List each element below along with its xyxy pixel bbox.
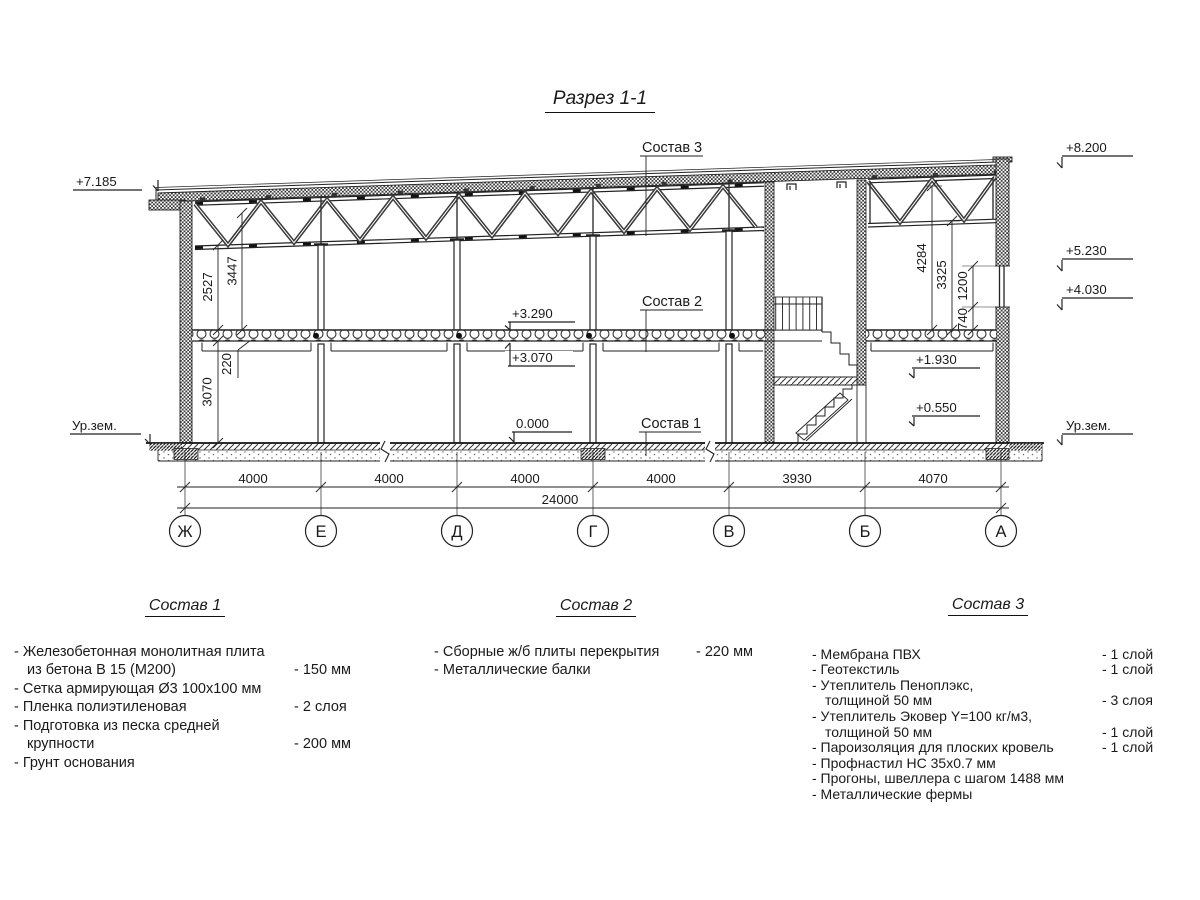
elev-parapet-right: +8.200 <box>1066 140 1107 155</box>
span-dim: 4070 <box>918 471 947 486</box>
legend-title: Состав 2 <box>434 597 758 616</box>
horizontal-dims <box>177 452 1009 516</box>
axis-label: В <box>723 523 734 541</box>
axis-label: А <box>995 523 1006 541</box>
legend-sostav-1: Состав 1 - Железобетонная монолитная пли… <box>14 597 356 772</box>
axis-label: Е <box>315 523 326 541</box>
legend-row: - Утеплитель Пеноплэкс, <box>812 678 1164 694</box>
legend-row: толщиной 50 мм- 1 слой <box>812 725 1164 741</box>
window-right-wall <box>995 266 1010 307</box>
ground-slab <box>146 441 1044 462</box>
legend-row: из бетона В 15 (М200)- 150 мм <box>14 661 356 680</box>
span-dim: 4000 <box>510 471 539 486</box>
axis-label: Д <box>451 523 462 541</box>
elev-platform-upper: +1.930 <box>916 352 957 367</box>
staircase <box>774 297 857 443</box>
elev-right-upper: +5.230 <box>1066 243 1107 258</box>
elev-right-lower: +4.030 <box>1066 282 1107 297</box>
elev-ground-right: Ур.зем. <box>1066 418 1111 433</box>
blind-area-right <box>1009 444 1042 451</box>
legend-row: - Железобетонная монолитная плита <box>14 643 356 662</box>
stair-landing <box>774 377 857 385</box>
legend-title: Состав 3 <box>812 597 1164 613</box>
elev-platform-lower: +0.550 <box>916 400 957 415</box>
elev-slab-bottom: +3.070 <box>512 350 553 365</box>
foundation-pad <box>986 449 1009 460</box>
legend-row: - Профнастил НС 35х0.7 мм <box>812 756 1164 772</box>
legend-row: - Мембрана ПВХ- 1 слой <box>812 647 1164 663</box>
legend-row: - Грунт основания <box>14 754 356 773</box>
legend-row: - Сборные ж/б плиты перекрытия- 220 мм <box>434 643 758 662</box>
dim-1200: 1200 <box>955 271 970 300</box>
legend-row: - Подготовка из песка средней <box>14 717 356 736</box>
callout-sostav-2: Состав 2 <box>642 294 702 310</box>
stair-upper-flight <box>822 332 857 376</box>
legend-row: - Пароизоляция для плоских кровель- 1 сл… <box>812 740 1164 756</box>
legend-row: - Пленка полиэтиленовая- 2 слоя <box>14 698 356 717</box>
dim-3325: 3325 <box>934 260 949 289</box>
break-symbol <box>705 441 715 462</box>
elev-ground-left: Ур.зем. <box>72 418 117 433</box>
legend-sostav-2: Состав 2 - Сборные ж/б плиты перекрытия-… <box>434 597 758 680</box>
span-dim: 4000 <box>374 471 403 486</box>
legend-title: Состав 1 <box>14 597 356 616</box>
axis-label: Ж <box>177 523 193 541</box>
legend-sostav-3: Состав 3 - Мембрана ПВХ- 1 слой - Геотек… <box>812 597 1164 803</box>
legend-row: крупности- 200 мм <box>14 735 356 754</box>
stair-lower-flight <box>798 385 852 443</box>
legend-row: толщиной 50 мм- 3 слоя <box>812 693 1164 709</box>
dim-3070: 3070 <box>200 377 215 406</box>
break-symbol <box>380 441 390 462</box>
stair-door-opening <box>857 385 866 443</box>
legend-row: - Металлические балки <box>434 661 758 680</box>
legend-row: - Геотекстиль- 1 слой <box>812 662 1164 678</box>
axis-label: Г <box>589 523 598 541</box>
cut-purlins <box>787 182 846 190</box>
callout-sostav-3: Состав 3 <box>642 140 702 156</box>
legend-row: - Металлические фермы <box>812 787 1164 803</box>
span-dim: 3930 <box>782 471 811 486</box>
section-drawing: 2527 3447 220 3070 4284 3325 1200 740 <box>0 0 1200 575</box>
floor-slab <box>192 330 996 341</box>
exterior-wall-left <box>180 201 192 443</box>
axis-label: Б <box>860 523 871 541</box>
legend-row: - Утеплитель Эковер Y=100 кг/м3, <box>812 709 1164 725</box>
elev-eaves-left: +7.185 <box>76 174 117 189</box>
dim-2527: 2527 <box>200 272 215 301</box>
stair-railing-grid <box>774 297 822 330</box>
legend-row: - Сетка армирующая Ø3 100х100 мм <box>14 680 356 699</box>
truss-diagonals-right <box>868 177 995 222</box>
drawing-sheet: Разрез 1-1 <box>0 0 1200 900</box>
dim-4284: 4284 <box>914 243 929 272</box>
foundation-pad <box>174 449 198 460</box>
callout-sostav-1: Состав 1 <box>641 416 701 432</box>
span-dim: 4000 <box>646 471 675 486</box>
stair-wall-left <box>765 182 774 443</box>
dim-740: 740 <box>955 308 970 330</box>
elev-slab-top: +3.290 <box>512 306 553 321</box>
legend-row: - Прогоны, швеллера с шагом 1488 мм <box>812 771 1164 787</box>
span-dim: 4000 <box>238 471 267 486</box>
total-span-dim: 24000 <box>542 492 579 507</box>
stair-wall-right <box>857 180 866 385</box>
dim-220: 220 <box>219 353 234 375</box>
elev-floor-zero: 0.000 <box>516 416 549 431</box>
dim-3447: 3447 <box>225 256 240 285</box>
